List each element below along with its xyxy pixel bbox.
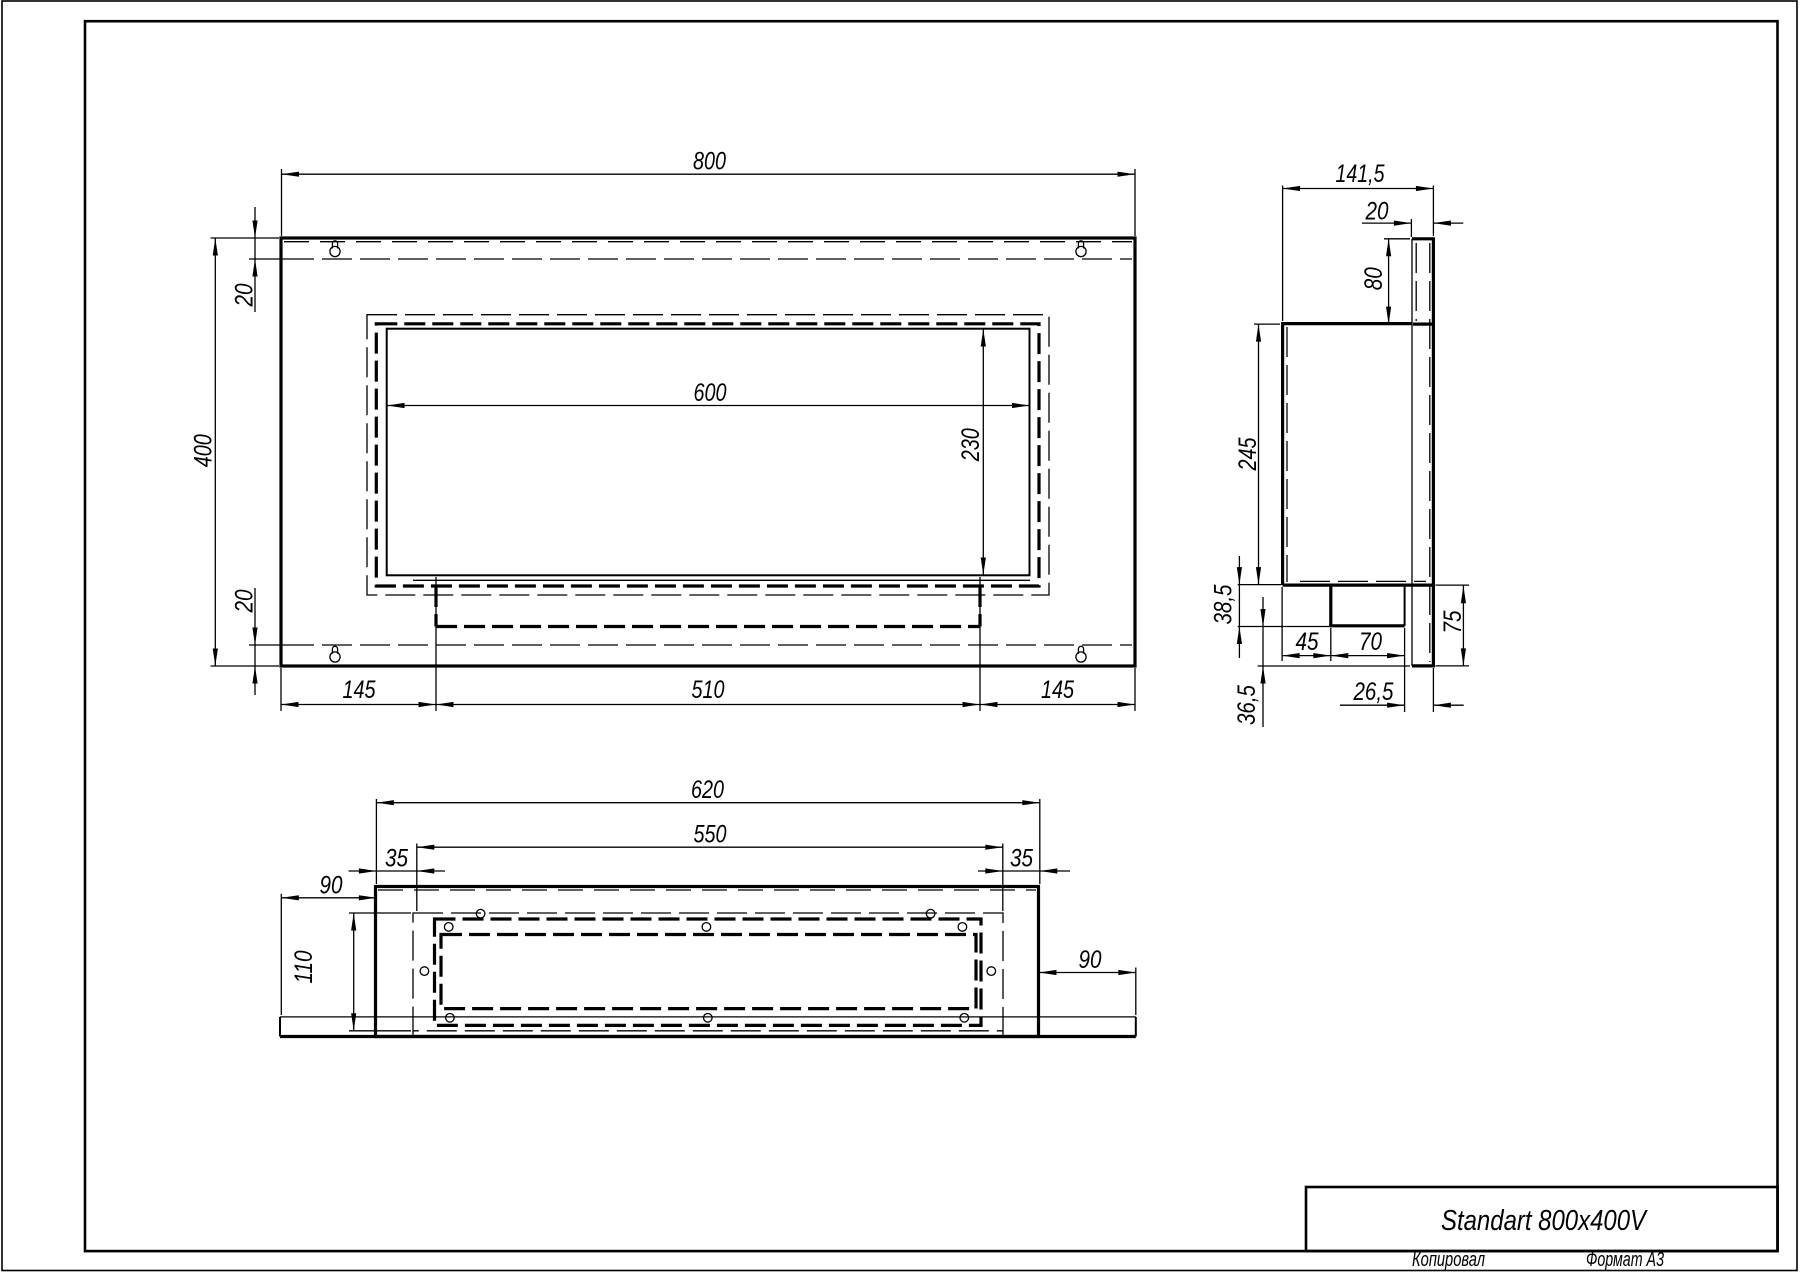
svg-text:70: 70 <box>1359 628 1382 656</box>
svg-text:141,5: 141,5 <box>1336 160 1385 188</box>
svg-text:800: 800 <box>693 148 726 176</box>
svg-text:75: 75 <box>1439 610 1467 633</box>
svg-text:Формат А3: Формат А3 <box>1586 1249 1664 1271</box>
svg-text:600: 600 <box>694 379 727 407</box>
svg-text:20: 20 <box>231 589 259 613</box>
svg-text:245: 245 <box>1234 437 1262 471</box>
svg-text:90: 90 <box>320 871 343 899</box>
svg-text:Standart 800x400V: Standart 800x400V <box>1441 1205 1648 1237</box>
svg-text:510: 510 <box>692 676 725 704</box>
svg-text:90: 90 <box>1079 946 1102 974</box>
svg-text:400: 400 <box>190 434 218 467</box>
svg-text:110: 110 <box>290 950 318 983</box>
svg-text:550: 550 <box>694 821 727 849</box>
svg-text:620: 620 <box>691 776 724 804</box>
svg-text:20: 20 <box>231 283 259 307</box>
svg-text:36,5: 36,5 <box>1233 685 1261 725</box>
svg-text:Копировал: Копировал <box>1412 1249 1485 1271</box>
svg-text:230: 230 <box>957 428 985 462</box>
svg-text:145: 145 <box>1041 676 1074 704</box>
svg-text:145: 145 <box>343 676 376 704</box>
svg-text:45: 45 <box>1296 628 1319 656</box>
svg-text:26,5: 26,5 <box>1353 678 1394 706</box>
svg-text:35: 35 <box>1010 845 1033 873</box>
svg-text:80: 80 <box>1360 267 1388 290</box>
svg-text:35: 35 <box>385 845 408 873</box>
svg-text:38,5: 38,5 <box>1210 584 1238 624</box>
svg-text:20: 20 <box>1365 198 1389 226</box>
